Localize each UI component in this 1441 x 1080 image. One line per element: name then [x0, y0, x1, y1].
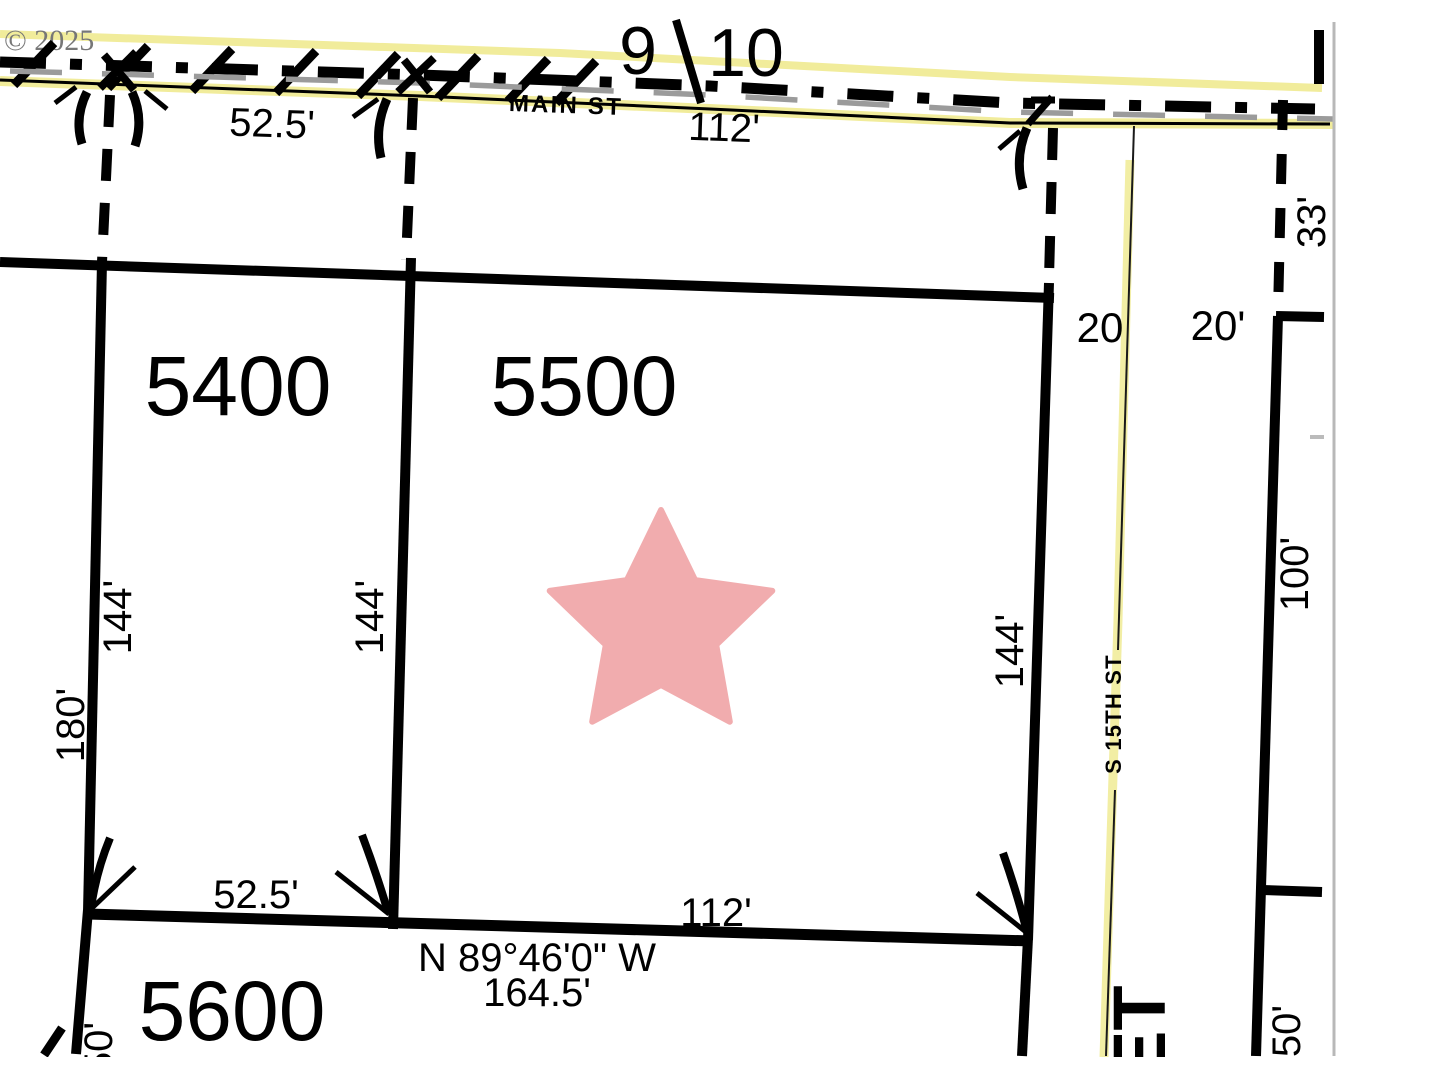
- svg-text:100': 100': [1273, 537, 1317, 611]
- svg-text:52.5': 52.5': [213, 873, 299, 917]
- svg-text:MAIN ST: MAIN ST: [509, 90, 624, 121]
- svg-text:20: 20: [1077, 304, 1124, 351]
- svg-text:144': 144': [96, 580, 140, 654]
- svg-text:50': 50': [1265, 1005, 1309, 1057]
- svg-text:112': 112': [688, 105, 761, 151]
- svg-text:9: 9: [619, 13, 657, 89]
- svg-text:S 15TH ST: S 15TH ST: [1101, 654, 1126, 774]
- svg-text:20': 20': [1191, 302, 1246, 349]
- svg-text:164.5': 164.5': [483, 971, 591, 1015]
- svg-text:52.5': 52.5': [229, 101, 316, 148]
- svg-text:5600: 5600: [139, 964, 326, 1058]
- svg-text:5500: 5500: [491, 339, 678, 433]
- svg-text:144': 144': [988, 614, 1032, 688]
- svg-text:10: 10: [708, 15, 784, 91]
- svg-text:180': 180': [49, 688, 93, 762]
- svg-text:33': 33': [1290, 196, 1334, 248]
- svg-text:5400: 5400: [145, 339, 332, 433]
- svg-text:112': 112': [680, 891, 751, 935]
- svg-text:144': 144': [348, 580, 392, 654]
